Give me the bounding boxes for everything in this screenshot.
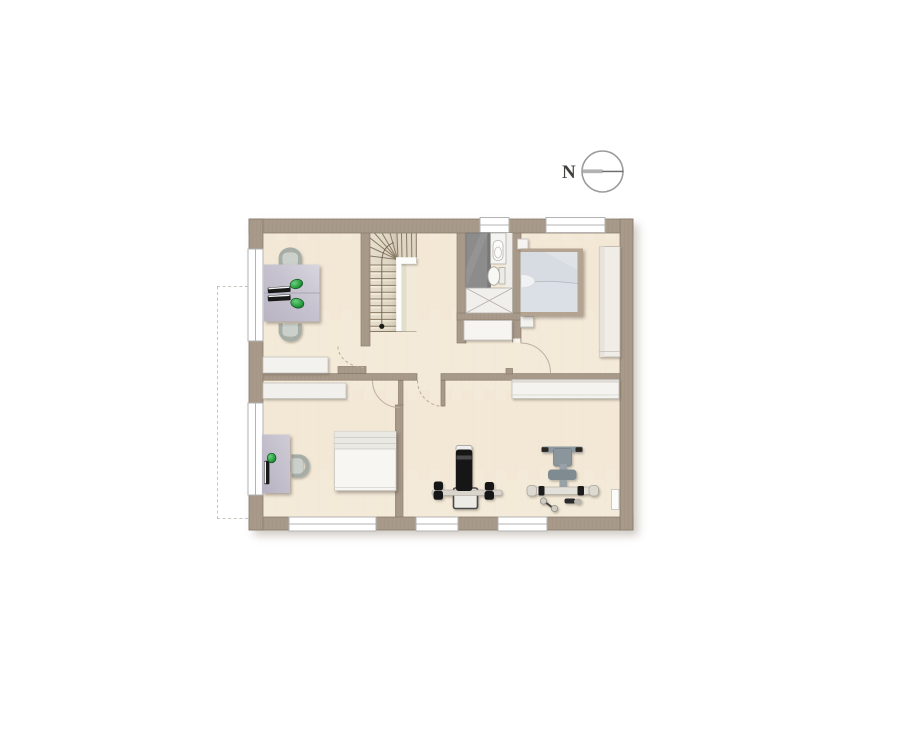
svg-text:N: N: [562, 162, 576, 183]
